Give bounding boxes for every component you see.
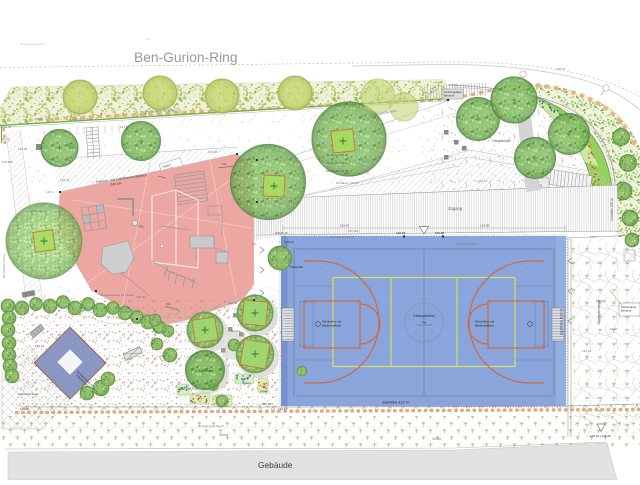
svg-text:136.46: 136.46 — [2, 125, 12, 129]
svg-text:OK136.26: OK136.26 — [275, 231, 288, 235]
svg-text:Zaunhöhe 4,00 m: Zaunhöhe 4,00 m — [282, 309, 286, 336]
svg-text:Deckbaum 136.89: Deckbaum 136.89 — [330, 235, 355, 239]
svg-text:Hängematte: Hängematte — [492, 139, 511, 143]
svg-text:136.4: 136.4 — [46, 190, 54, 194]
svg-text:OK Mauer 137.40: OK Mauer 137.40 — [326, 153, 349, 157]
svg-text:136.38: 136.38 — [228, 301, 238, 305]
svg-text:Zaunhöhe 230 m: Zaunhöhe 230 m — [456, 242, 479, 246]
svg-text:06.38: 06.38 — [248, 157, 256, 161]
svg-text:126.16: 126.16 — [596, 299, 606, 303]
svg-text:Basketballkorb: Basketballkorb — [322, 323, 341, 327]
svg-text:126.10: 126.10 — [278, 407, 288, 411]
svg-text:126.1x: 126.1x — [285, 240, 295, 244]
svg-text:OK Mauer 137.11: OK Mauer 137.11 — [326, 161, 348, 165]
svg-text:128.74: 128.74 — [556, 67, 566, 71]
svg-text:136.45: 136.45 — [60, 178, 70, 182]
svg-text:Matschzentrale: Matschzentrale — [18, 392, 39, 396]
svg-text:136.36: 136.36 — [120, 310, 130, 314]
svg-text:1%: 1% — [252, 242, 257, 246]
svg-text:Sitzwürfel: Sitzwürfel — [290, 265, 303, 269]
svg-text:128.63: 128.63 — [340, 224, 350, 228]
svg-text:Wiese: Wiese — [219, 433, 229, 437]
svg-text:+ Aufenthalt: + Aufenthalt — [196, 369, 213, 373]
svg-text:137.08: 137.08 — [120, 125, 130, 129]
svg-text:136.14: 136.14 — [35, 344, 45, 348]
svg-text:1%: 1% — [262, 213, 267, 217]
svg-text:Gebäude: Gebäude — [258, 460, 293, 470]
svg-text:Rasengittersteine: Rasengittersteine — [597, 299, 601, 324]
svg-text:Bestand: Bestand — [444, 94, 455, 98]
svg-text:Astern: Astern — [243, 381, 252, 385]
svg-text:126.98: 126.98 — [435, 231, 445, 235]
svg-text:137.08: 137.08 — [208, 150, 218, 154]
svg-text:Mehrfamilienhäuser: Mehrfamilienhäuser — [2, 253, 6, 278]
svg-text:126.52 | 126.38: 126.52 | 126.38 — [590, 434, 611, 438]
svg-text:Nachbargrundstück: Nachbargrundstück — [198, 424, 225, 428]
svg-text:Zugang: Zugang — [448, 206, 463, 211]
svg-text:04.67: 04.67 — [610, 327, 618, 331]
svg-text:OK Mauer 136.89: OK Mauer 136.89 — [326, 169, 349, 173]
svg-text:1%: 1% — [222, 162, 227, 166]
svg-text:118.458: 118.458 — [2, 160, 13, 164]
svg-text:Kleinspielfeld: Kleinspielfeld — [413, 314, 434, 318]
svg-text:Basketballkorb: Basketballkorb — [475, 323, 494, 327]
svg-text:Sitzw.: Sitzw. — [231, 329, 239, 333]
svg-text:136.07: 136.07 — [478, 179, 488, 183]
svg-text:136.30: 136.30 — [136, 295, 146, 299]
svg-text:128.98: 128.98 — [480, 224, 490, 228]
svg-text:Zaunhöhe 4,02 m: Zaunhöhe 4,02 m — [382, 401, 409, 405]
svg-text:04.Mäuer 137.06: 04.Mäuer 137.06 — [336, 181, 359, 185]
svg-text:Turnhalle 230 m: Turnhalle 230 m — [610, 198, 614, 221]
svg-text:Bestand: Bestand — [621, 309, 632, 313]
svg-text:128.43: 128.43 — [448, 83, 458, 87]
svg-text:Zaunhöhe 4,00 m: Zaunhöhe 4,00 m — [560, 309, 564, 336]
svg-text:06.38: 06.38 — [35, 117, 43, 121]
svg-text:126.38: 126.38 — [262, 402, 272, 406]
svg-text:06.43: 06.43 — [2, 137, 10, 141]
svg-text:Wiese: Wiese — [432, 437, 442, 441]
svg-text:70a: 70a — [422, 321, 427, 325]
svg-text:Übergangsweg für Spieler: Übergangsweg für Spieler — [100, 293, 135, 297]
svg-text:Astern: Astern — [260, 389, 269, 393]
svg-text:136.395: 136.395 — [32, 209, 43, 213]
svg-text:Zuschnitt 1,50 m: Zuschnitt 1,50 m — [70, 117, 93, 121]
svg-text:B 8: B 8 — [146, 37, 151, 41]
svg-text:126.16: 126.16 — [582, 349, 592, 353]
svg-text:176.1: 176.1 — [590, 235, 598, 239]
svg-text:Ben-Gurion-Ring: Ben-Gurion-Ring — [134, 50, 238, 65]
svg-text:126.63: 126.63 — [396, 231, 406, 235]
svg-text:2% 42m: 2% 42m — [348, 229, 360, 233]
svg-text:136.48: 136.48 — [18, 147, 28, 151]
svg-text:Grundstücksgrenze: Grundstücksgrenze — [20, 42, 45, 46]
